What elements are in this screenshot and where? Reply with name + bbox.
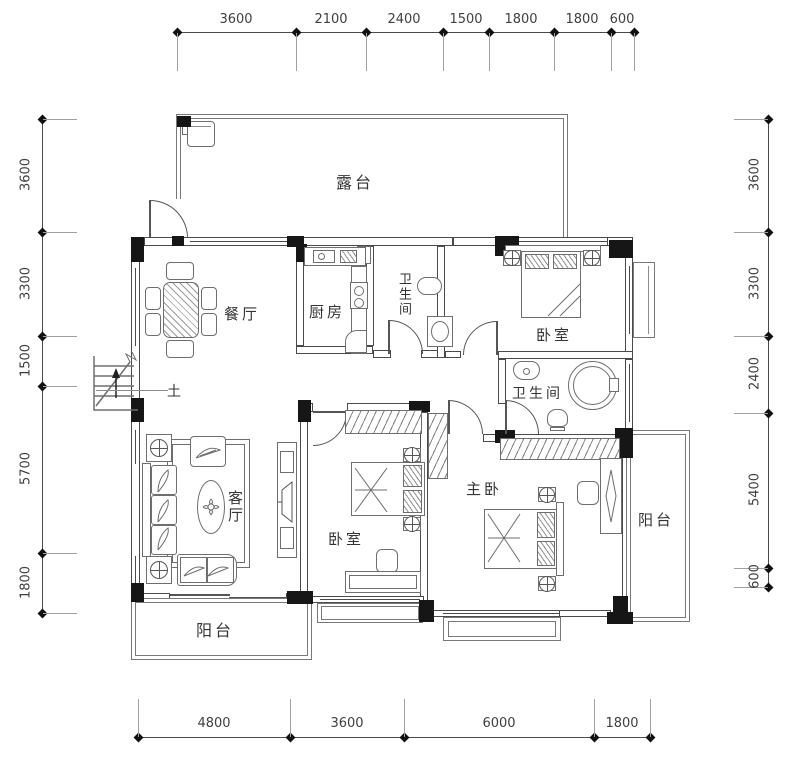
sofa-back — [142, 463, 151, 557]
dim-label: 1500 — [441, 12, 491, 27]
dining-chair-icon — [201, 313, 217, 336]
basin-icon — [431, 321, 449, 342]
door-arc-bedroom2 — [313, 412, 347, 446]
dim-label: 2400 — [748, 349, 763, 399]
dim-label: 2100 — [306, 12, 356, 27]
wall — [144, 237, 192, 246]
wall-lamp-icon — [584, 250, 600, 266]
dining-chair-icon — [166, 340, 194, 358]
door-arc-bath2 — [505, 400, 539, 434]
pillow-icon — [537, 541, 555, 566]
kitchen-counter-corner — [345, 330, 367, 353]
quilt-fold — [486, 512, 522, 564]
speaker-box — [280, 527, 294, 549]
wall-lamp-icon — [404, 447, 420, 463]
door-arc-master — [448, 400, 483, 434]
wall — [290, 237, 453, 246]
quilt-fold — [353, 466, 389, 514]
extension-line — [554, 33, 555, 71]
door-leaf — [388, 320, 390, 354]
desk-inner — [349, 575, 417, 589]
window-bath2-right — [625, 364, 633, 422]
dim-label: 3600 — [748, 150, 763, 200]
dining-chair-icon — [145, 313, 161, 336]
wall-lamp-icon — [539, 576, 555, 592]
tv-icon — [276, 480, 296, 524]
wall — [300, 412, 308, 598]
window-bedroom2-bottom — [320, 596, 420, 603]
dining-table-icon — [163, 282, 199, 338]
dining-chair-icon — [145, 287, 161, 310]
extension-line — [734, 413, 768, 414]
dim-label: 1500 — [19, 336, 34, 386]
stove-burner — [354, 286, 364, 296]
extension-line — [734, 119, 768, 120]
column — [298, 400, 311, 422]
room-label-bedroom2: 卧室 — [328, 528, 364, 549]
sliding-door-panel — [170, 594, 230, 596]
flower-icon — [201, 497, 221, 517]
room-label-kitchen: 厨房 — [309, 301, 345, 322]
kitchen-vent-grill — [340, 250, 357, 263]
extension-line — [43, 553, 77, 554]
dim-label: 5700 — [19, 444, 34, 494]
window-dining-left — [131, 268, 140, 346]
column — [419, 600, 434, 622]
dim-label: 1800 — [496, 12, 546, 27]
dim-label: 3300 — [748, 259, 763, 309]
wardrobe-icon — [345, 410, 422, 434]
extension-line — [404, 699, 405, 737]
extension-line — [734, 232, 768, 233]
extension-line — [177, 33, 178, 71]
extension-line — [734, 336, 768, 337]
extension-line — [290, 699, 291, 737]
room-label-master: 主卧 — [466, 478, 502, 499]
door-leaf — [313, 411, 347, 413]
column — [613, 596, 628, 614]
wall — [445, 351, 461, 358]
quilt-fold — [547, 283, 581, 317]
entry-guide-line — [96, 390, 168, 391]
extension-line — [43, 386, 77, 387]
dim-label: 3300 — [19, 259, 34, 309]
extension-line — [489, 33, 490, 71]
wall — [498, 351, 633, 359]
extension-line — [296, 33, 297, 71]
wall-lamp-icon — [539, 487, 555, 503]
wall — [498, 359, 506, 404]
dim-label: 3600 — [211, 12, 261, 27]
wardrobe-icon — [428, 413, 448, 479]
window-living-left-upper — [131, 430, 140, 464]
extension-line — [611, 33, 612, 71]
extension-line — [43, 232, 77, 233]
bay-window-bedroom1 — [633, 262, 655, 338]
extension-line — [443, 33, 444, 71]
column — [177, 116, 191, 127]
pillow-icon — [537, 512, 555, 538]
dim-label: 3600 — [19, 150, 34, 200]
extension-line — [366, 33, 367, 71]
dimension-line-right — [768, 119, 769, 587]
window-master-bottom — [443, 610, 561, 617]
chair-icon — [376, 549, 398, 573]
door-arc-bedroom1 — [463, 321, 497, 355]
dim-label: 5400 — [748, 465, 763, 515]
extension-line — [43, 613, 77, 614]
floor-plan: 土 — [0, 0, 800, 769]
door-leaf — [496, 321, 498, 355]
sink-drain — [318, 253, 325, 260]
room-label-dining: 餐厅 — [224, 303, 260, 324]
bathtub-step — [609, 378, 619, 392]
extension-line — [43, 336, 77, 337]
sofa-leaf — [154, 468, 174, 552]
door-leaf — [505, 400, 507, 434]
basin-drain — [523, 368, 530, 375]
wall — [559, 610, 611, 617]
dim-label: 600 — [748, 552, 763, 602]
toilet-icon — [417, 277, 442, 295]
extension-line — [138, 699, 139, 737]
dimension-line-bottom — [138, 737, 650, 738]
dimension-line-left — [42, 119, 43, 613]
fan-chair-detail — [150, 561, 168, 579]
room-label-bath2: 卫生间 — [512, 383, 563, 403]
pillow-icon — [553, 254, 577, 269]
speaker-box — [280, 451, 294, 473]
room-label-bedroom1: 卧室 — [536, 324, 572, 345]
ac-unit-icon — [187, 121, 215, 147]
door-leaf — [149, 200, 151, 238]
room-label-terrace: 露台 — [336, 169, 374, 193]
window-bedroom1-right — [625, 266, 633, 334]
dim-label: 2400 — [379, 12, 429, 27]
bed-headboard — [556, 502, 564, 576]
dim-label: 4800 — [184, 716, 244, 731]
loveseat-leaf — [182, 560, 232, 580]
extension-line — [43, 119, 77, 120]
dining-chair-icon — [166, 262, 194, 280]
bathtub-inner — [573, 366, 612, 405]
extension-line — [634, 33, 635, 71]
stove-burner — [354, 298, 364, 308]
toilet-icon — [547, 409, 568, 427]
bay-window-mullion — [648, 266, 649, 334]
pillow-icon — [525, 254, 549, 269]
pillow-icon — [403, 490, 422, 513]
dimension-line-top — [177, 32, 634, 33]
dim-label: 6000 — [469, 716, 529, 731]
pillow-icon — [403, 465, 422, 487]
column — [609, 240, 633, 258]
dim-label: 1800 — [592, 716, 652, 731]
stairs-icon — [86, 352, 142, 414]
dining-chair-icon — [201, 287, 217, 310]
fan-chair-detail — [150, 439, 168, 457]
room-label-living: 客厅 — [225, 490, 246, 524]
dim-label: 3600 — [317, 716, 377, 731]
toilet-base — [550, 427, 565, 431]
dresser-mirror — [602, 468, 620, 524]
wall-lamp-icon — [504, 250, 520, 266]
armchair-leaf — [194, 442, 222, 462]
room-label-bath1: 卫生间 — [394, 272, 413, 317]
ac-unit-detail — [191, 126, 211, 127]
bay-window-bedroom2-inner — [321, 606, 419, 620]
window-dining-top — [190, 237, 290, 246]
door-arc-bath1 — [389, 320, 423, 354]
chair-icon — [577, 481, 599, 505]
dim-label: 1800 — [19, 558, 34, 608]
column — [131, 237, 144, 262]
room-label-balcony-right: 阳台 — [638, 509, 674, 530]
column — [287, 591, 313, 604]
wall-lamp-icon — [404, 516, 420, 532]
column — [131, 583, 144, 602]
wardrobe-icon — [500, 438, 620, 460]
door-leaf — [448, 400, 450, 434]
room-label-balcony-left: 阳台 — [196, 617, 234, 641]
dim-label: 600 — [597, 12, 647, 27]
bay-window-master-inner — [448, 621, 556, 637]
stair-mark: 土 — [167, 381, 181, 401]
